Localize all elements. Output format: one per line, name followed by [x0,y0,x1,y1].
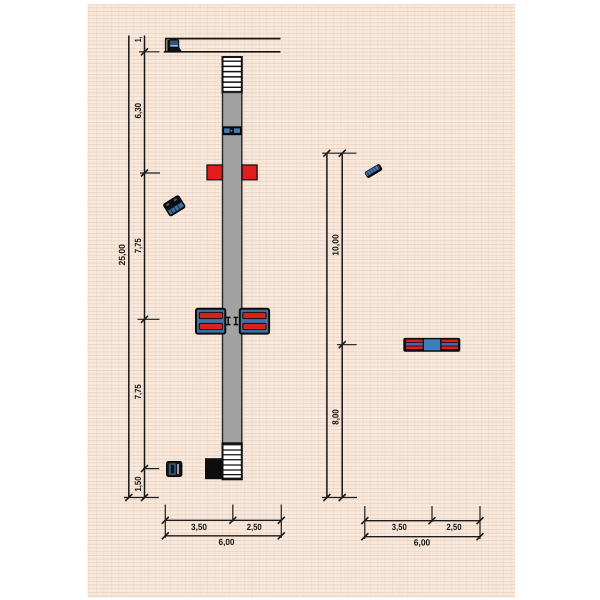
svg-text:1,50: 1,50 [133,477,143,492]
svg-text:1,: 1, [133,37,143,43]
svg-text:6,00: 6,00 [414,537,431,547]
svg-text:6,00: 6,00 [219,537,235,547]
svg-text:7,75: 7,75 [133,384,143,399]
svg-text:8,00: 8,00 [331,409,341,424]
svg-text:6,30: 6,30 [133,103,143,118]
svg-text:2,50: 2,50 [447,522,462,532]
svg-text:2,50: 2,50 [247,522,262,532]
svg-text:3,50: 3,50 [191,522,207,532]
svg-text:7,75: 7,75 [133,238,143,253]
svg-text:3,50: 3,50 [392,522,407,532]
svg-text:10,00: 10,00 [331,234,341,256]
svg-text:25,00: 25,00 [117,244,127,265]
